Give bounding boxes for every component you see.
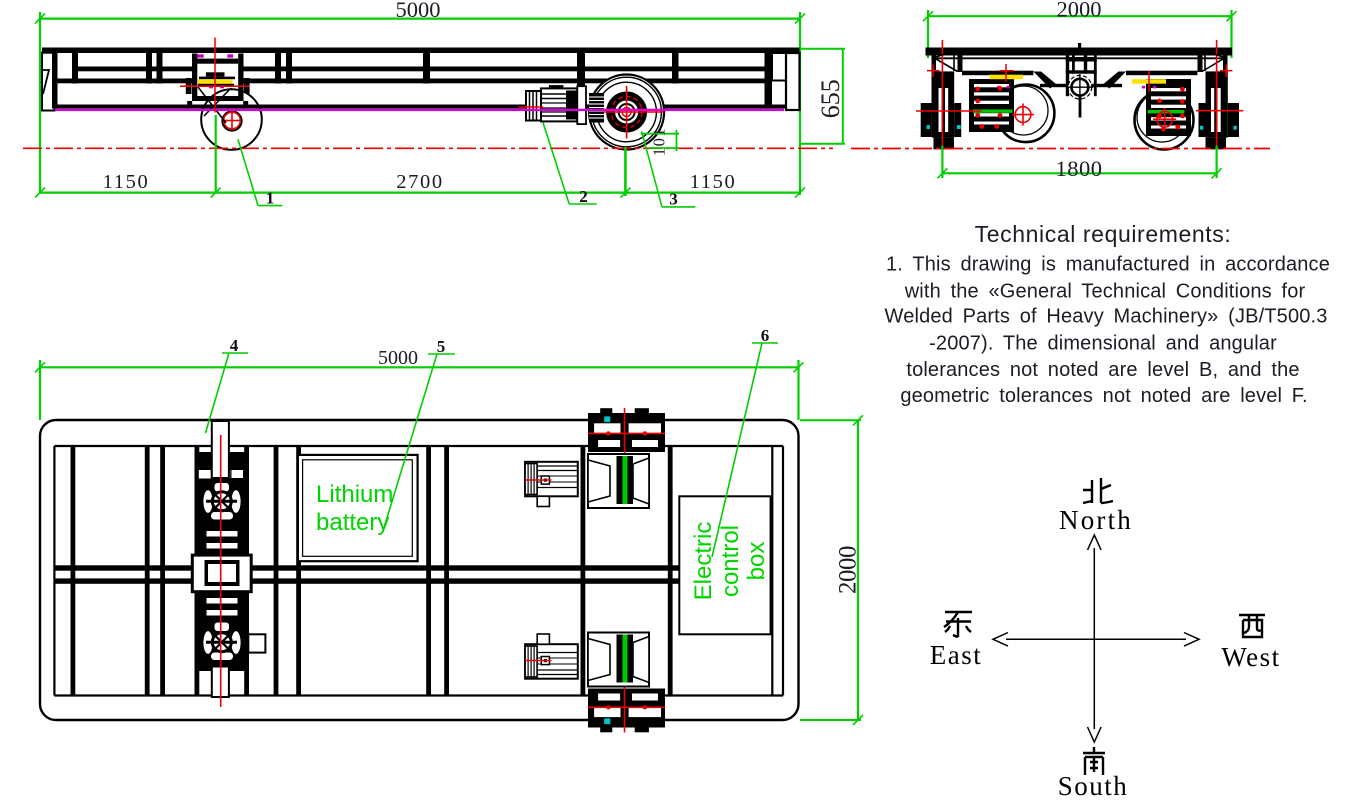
svg-text:655: 655 — [816, 79, 845, 118]
svg-text:East: East — [930, 640, 983, 670]
svg-text:3: 3 — [669, 190, 678, 209]
svg-text:2: 2 — [579, 187, 588, 206]
svg-text:geometric tolerances not noted: geometric tolerances not noted are level… — [900, 385, 1307, 407]
svg-text:2700: 2700 — [396, 171, 443, 193]
svg-text:4: 4 — [230, 336, 239, 355]
svg-text:tolerances not noted are level: tolerances not noted are level B, and th… — [906, 359, 1299, 381]
svg-text:West: West — [1221, 642, 1280, 672]
svg-text:1150: 1150 — [103, 171, 150, 193]
svg-text:Lithium: Lithium — [316, 481, 393, 508]
svg-text:5: 5 — [437, 337, 446, 356]
svg-text:Technical requirements:: Technical requirements: — [975, 221, 1232, 247]
svg-text:South: South — [1058, 771, 1129, 801]
svg-text:2000: 2000 — [1057, 0, 1102, 22]
svg-text:1. This drawing is manufacture: 1. This drawing is manufactured in accor… — [886, 254, 1330, 276]
svg-text:5000: 5000 — [378, 347, 418, 369]
svg-text:1150: 1150 — [690, 171, 737, 193]
svg-text:5000: 5000 — [396, 0, 441, 22]
svg-text:101: 101 — [650, 127, 669, 156]
svg-text:-2007). The dimensional and an: -2007). The dimensional and angular — [929, 333, 1277, 355]
svg-text:6: 6 — [761, 326, 770, 345]
svg-text:box: box — [743, 542, 770, 581]
svg-text:Welded Parts of Heavy Machiner: Welded Parts of Heavy Machinery» (JB/T50… — [885, 306, 1328, 328]
svg-text:control: control — [717, 525, 744, 597]
svg-text:battery: battery — [316, 509, 389, 536]
svg-text:with the «General Technical Co: with the «General Technical Conditions f… — [904, 281, 1306, 303]
svg-text:North: North — [1059, 505, 1133, 535]
svg-text:1800: 1800 — [1056, 156, 1103, 181]
svg-text:2000: 2000 — [835, 546, 862, 594]
svg-text:1: 1 — [266, 189, 275, 208]
svg-text:Electric: Electric — [690, 522, 717, 601]
